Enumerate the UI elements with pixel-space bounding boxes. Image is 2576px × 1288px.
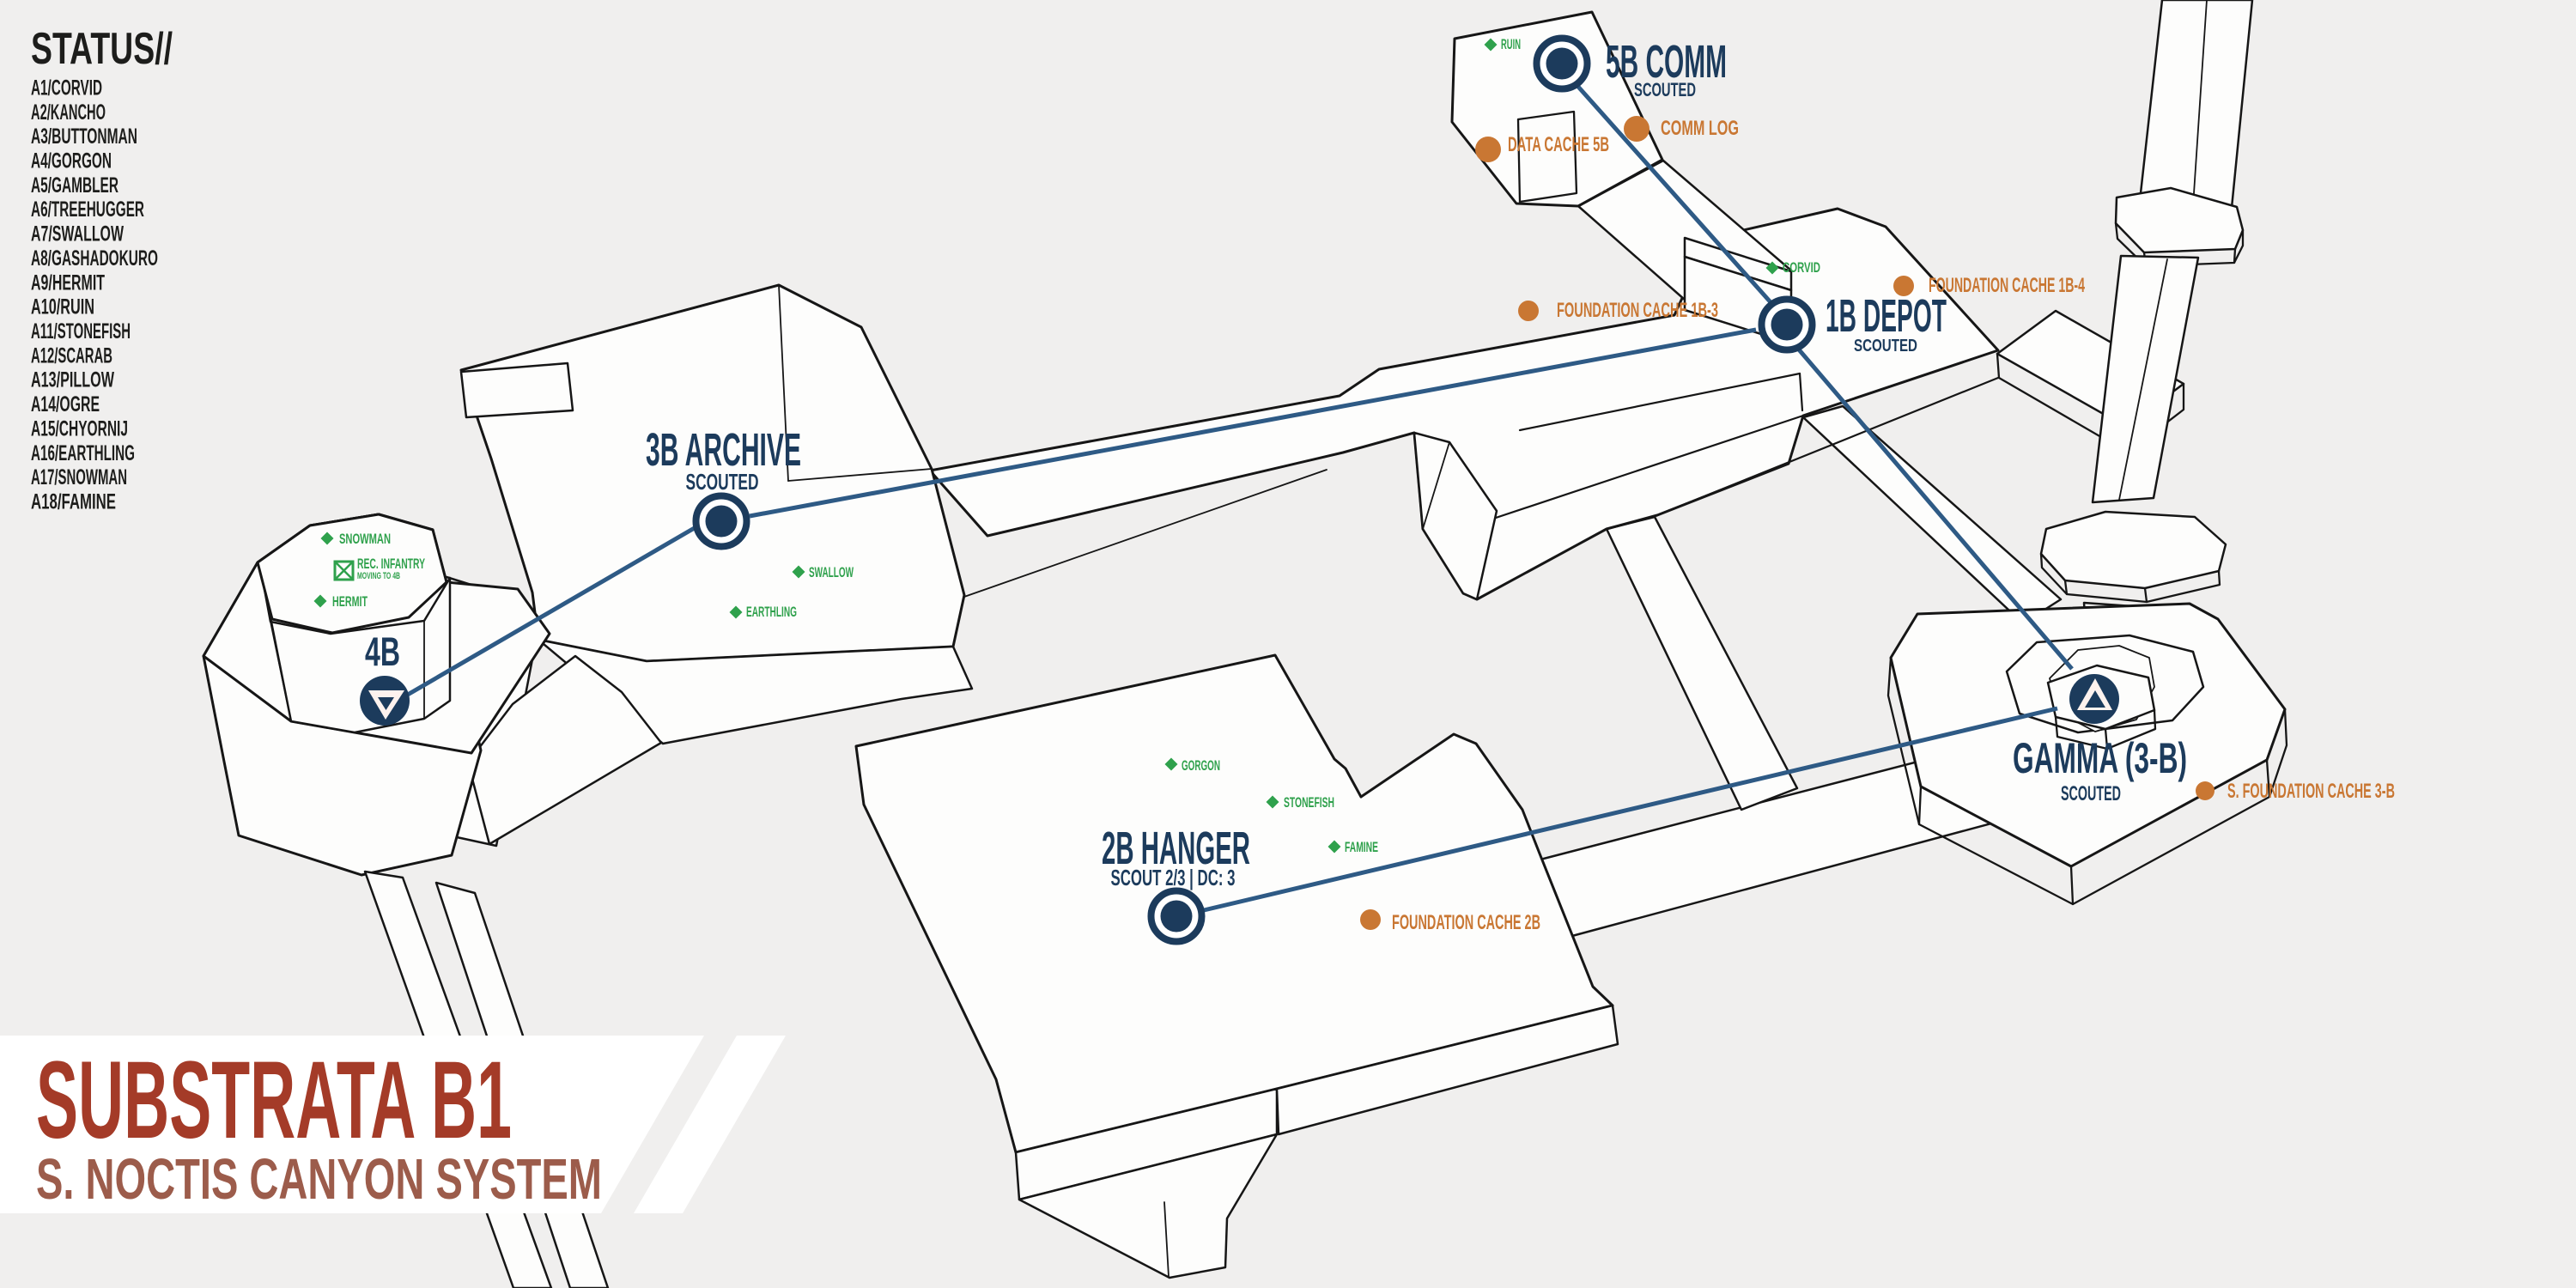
svg-text:A3/BUTTONMAN: A3/BUTTONMAN bbox=[31, 125, 137, 149]
svg-text:3B ARCHIVE: 3B ARCHIVE bbox=[646, 424, 801, 476]
svg-text:S. NOCTIS CANYON SYSTEM: S. NOCTIS CANYON SYSTEM bbox=[36, 1147, 602, 1212]
svg-text:A10/RUIN: A10/RUIN bbox=[31, 295, 94, 319]
svg-text:S. FOUNDATION CACHE 3-B: S. FOUNDATION CACHE 3-B bbox=[2227, 780, 2395, 803]
svg-text:A12/SCARAB: A12/SCARAB bbox=[31, 343, 112, 368]
svg-text:FOUNDATION CACHE 2B: FOUNDATION CACHE 2B bbox=[1392, 911, 1540, 934]
svg-text:FAMINE: FAMINE bbox=[1345, 839, 1378, 855]
svg-text:1B DEPOT: 1B DEPOT bbox=[1826, 290, 1947, 342]
svg-text:A13/PILLOW: A13/PILLOW bbox=[31, 368, 114, 392]
svg-text:A11/STONEFISH: A11/STONEFISH bbox=[31, 319, 131, 343]
svg-text:SUBSTRATA B1: SUBSTRATA B1 bbox=[36, 1039, 512, 1162]
svg-text:A9/HERMIT: A9/HERMIT bbox=[31, 270, 105, 295]
svg-text:SWALLOW: SWALLOW bbox=[809, 564, 854, 580]
svg-text:FOUNDATION CACHE 1B-3: FOUNDATION CACHE 1B-3 bbox=[1557, 299, 1718, 322]
svg-text:EARTHLING: EARTHLING bbox=[746, 604, 797, 620]
svg-text:A6/TREEHUGGER: A6/TREEHUGGER bbox=[31, 197, 144, 222]
svg-text:HERMIT: HERMIT bbox=[332, 593, 368, 610]
svg-text:GORGON: GORGON bbox=[1182, 757, 1220, 774]
svg-text:REC. INFANTRY: REC. INFANTRY bbox=[357, 556, 425, 572]
svg-text:STATUS//: STATUS// bbox=[31, 24, 173, 74]
svg-text:A16/EARTHLING: A16/EARTHLING bbox=[31, 441, 135, 465]
svg-text:A7/SWALLOW: A7/SWALLOW bbox=[31, 222, 124, 246]
svg-text:4B: 4B bbox=[365, 629, 400, 674]
svg-text:SCOUTED: SCOUTED bbox=[2061, 782, 2121, 805]
svg-text:STONEFISH: STONEFISH bbox=[1284, 794, 1334, 811]
svg-text:MOVING TO 4B: MOVING TO 4B bbox=[357, 571, 400, 581]
svg-text:SCOUT 2/3 | DC: 3: SCOUT 2/3 | DC: 3 bbox=[1111, 865, 1236, 890]
svg-text:FOUNDATION CACHE 1B-4: FOUNDATION CACHE 1B-4 bbox=[1929, 274, 2085, 297]
svg-text:SCOUTED: SCOUTED bbox=[1854, 337, 1917, 355]
svg-text:RUIN: RUIN bbox=[1501, 36, 1521, 52]
svg-text:A18/FAMINE: A18/FAMINE bbox=[31, 490, 116, 514]
svg-text:DATA CACHE 5B: DATA CACHE 5B bbox=[1508, 133, 1609, 156]
svg-text:GAMMA (3-B): GAMMA (3-B) bbox=[2013, 734, 2187, 782]
svg-text:COMM LOG: COMM LOG bbox=[1661, 117, 1739, 140]
svg-text:SCOUTED: SCOUTED bbox=[1634, 79, 1696, 100]
svg-text:A5/GAMBLER: A5/GAMBLER bbox=[31, 173, 118, 197]
svg-text:CORVID: CORVID bbox=[1783, 259, 1820, 276]
svg-text:A15/CHYORNIJ: A15/CHYORNIJ bbox=[31, 416, 128, 440]
svg-text:SCOUTED: SCOUTED bbox=[686, 469, 759, 495]
svg-text:A2/KANCHO: A2/KANCHO bbox=[31, 100, 106, 125]
svg-text:A4/GORGON: A4/GORGON bbox=[31, 149, 112, 173]
svg-text:A8/GASHADOKURO: A8/GASHADOKURO bbox=[31, 246, 158, 270]
svg-text:A17/SNOWMAN: A17/SNOWMAN bbox=[31, 465, 127, 489]
svg-text:SNOWMAN: SNOWMAN bbox=[339, 531, 391, 547]
svg-text:A14/OGRE: A14/OGRE bbox=[31, 392, 100, 416]
svg-text:A1/CORVID: A1/CORVID bbox=[31, 76, 102, 100]
